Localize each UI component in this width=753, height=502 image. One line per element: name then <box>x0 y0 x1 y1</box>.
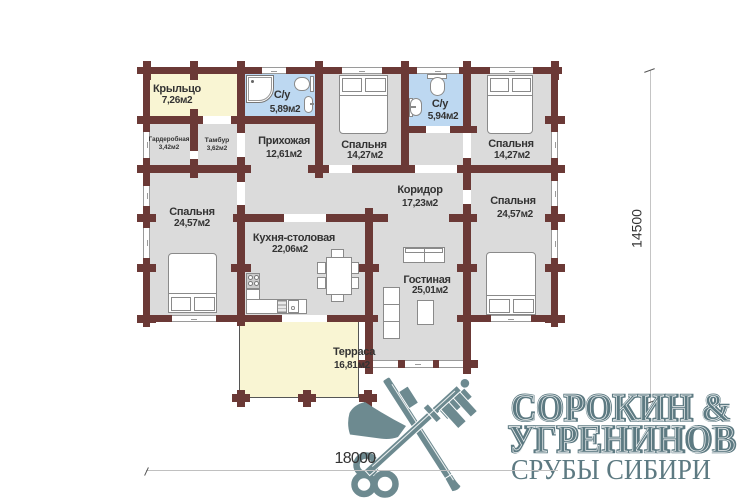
svg-text:УГРЕНИНОВ: УГРЕНИНОВ <box>508 418 736 461</box>
